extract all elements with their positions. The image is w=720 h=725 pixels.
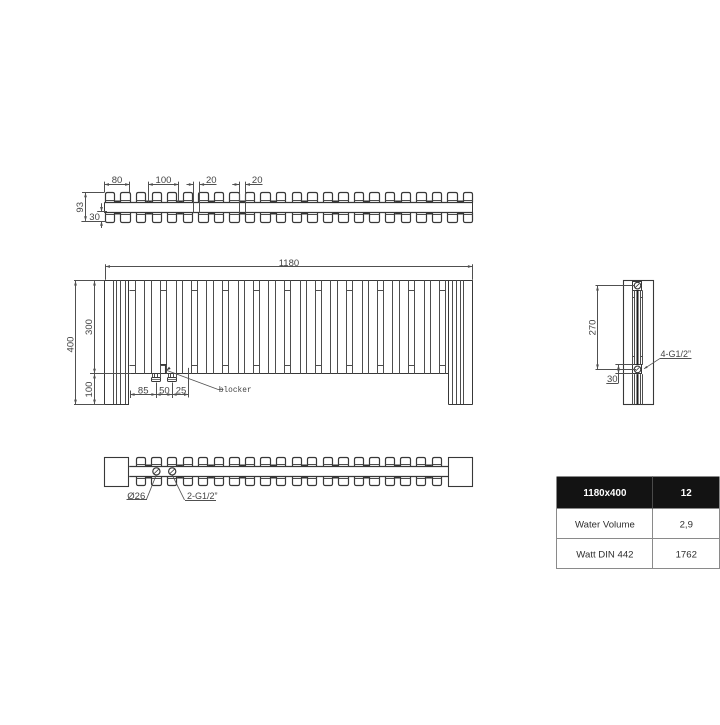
svg-text:Watt DIN 442: Watt DIN 442 [576, 549, 633, 560]
svg-text:270: 270 [587, 320, 598, 336]
svg-text:1180x400: 1180x400 [583, 488, 627, 499]
svg-text:Water Volume: Water Volume [575, 519, 635, 530]
svg-text:80: 80 [112, 175, 123, 186]
svg-text:93: 93 [75, 202, 86, 213]
svg-text:100: 100 [156, 175, 172, 186]
svg-text:Ø26: Ø26 [127, 491, 145, 502]
svg-text:2-G1/2”: 2-G1/2” [187, 491, 218, 501]
svg-text:20: 20 [252, 175, 263, 186]
svg-text:1762: 1762 [676, 549, 697, 560]
svg-text:30: 30 [89, 212, 100, 223]
svg-text:400: 400 [65, 337, 76, 353]
svg-text:300: 300 [84, 319, 95, 335]
svg-text:4-G1/2”: 4-G1/2” [661, 349, 692, 359]
svg-text:1180: 1180 [279, 258, 299, 269]
svg-text:12: 12 [681, 488, 692, 499]
svg-text:50: 50 [159, 385, 170, 396]
svg-text:20: 20 [206, 175, 217, 186]
svg-text:blocker: blocker [219, 387, 252, 395]
svg-text:100: 100 [84, 382, 95, 398]
svg-text:25: 25 [176, 385, 187, 396]
svg-text:2,9: 2,9 [680, 519, 693, 530]
svg-text:85: 85 [138, 385, 149, 396]
